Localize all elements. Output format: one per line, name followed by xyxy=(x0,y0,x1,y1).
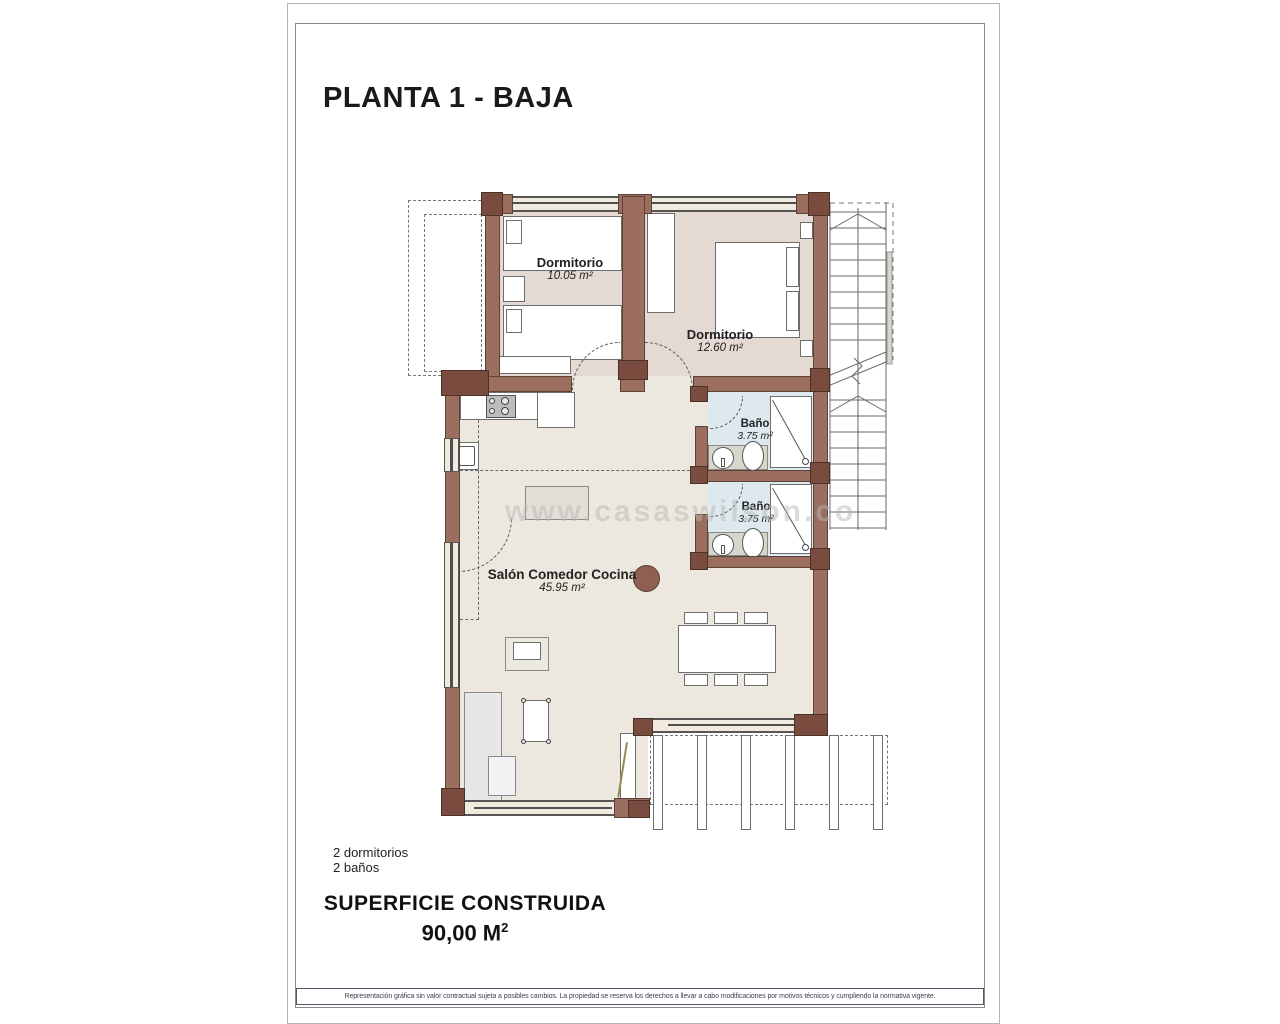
terrace-column xyxy=(873,735,883,830)
bed-pillow xyxy=(506,309,522,333)
washbasin xyxy=(742,441,764,471)
bath-post xyxy=(690,386,708,402)
bath-south-wall xyxy=(695,556,828,568)
east-wall-post xyxy=(810,462,830,484)
dining-chair xyxy=(684,674,708,686)
shower-drain xyxy=(802,458,809,465)
nightstand xyxy=(800,340,813,357)
coffee-table xyxy=(523,700,549,742)
upper-terrace-inner xyxy=(424,214,482,372)
corner-post-nw xyxy=(481,192,503,216)
bedroom-1-west-wall xyxy=(485,196,500,378)
stove-burner xyxy=(501,397,509,405)
terrace-column xyxy=(653,735,663,830)
sofa-chaise xyxy=(488,756,516,796)
living-label: Salón Comedor Cocina 45.95 m² xyxy=(482,568,642,595)
coffee-table-leg xyxy=(521,739,526,744)
summary-baths: 2 baños xyxy=(333,860,379,875)
corner-post-se xyxy=(794,714,828,736)
bath-post xyxy=(690,552,708,570)
floorplan-document: PLANTA 1 - BAJA xyxy=(0,0,1280,1024)
coffee-table-leg xyxy=(546,698,551,703)
bedroom-partition-wall xyxy=(622,196,645,378)
nightstand xyxy=(800,222,813,239)
dining-chair xyxy=(714,612,738,624)
bath-1-label: Baño 3.75 m² xyxy=(715,418,795,442)
summary-bedrooms: 2 dormitorios xyxy=(333,845,408,860)
built-area-block: SUPERFICIE CONSTRUIDA 90,00 M2 xyxy=(310,892,620,946)
terrace-column xyxy=(829,735,839,830)
plan-title: PLANTA 1 - BAJA xyxy=(323,82,574,115)
kitchen-zone-line-h xyxy=(460,470,695,471)
corner-post-ne xyxy=(808,192,830,216)
terrace-column xyxy=(741,735,751,830)
built-area-label: SUPERFICIE CONSTRUIDA xyxy=(310,892,620,916)
hall-wall-a xyxy=(485,376,572,392)
north-wall-band xyxy=(485,196,828,212)
shower-drain xyxy=(802,544,809,551)
dining-chair xyxy=(744,612,768,624)
stove-burner xyxy=(489,408,495,414)
east-wall-post xyxy=(810,548,830,570)
bed-pillow xyxy=(786,247,799,287)
built-area-value: 90,00 M2 xyxy=(310,920,620,946)
bed-pillow xyxy=(786,291,799,331)
dresser xyxy=(495,356,571,374)
kitchen-window xyxy=(444,438,459,472)
hall-wall-c xyxy=(693,376,828,392)
bedroom-1-window xyxy=(513,202,618,204)
bath-post xyxy=(690,466,708,484)
footer-disclaimer-box: Representación gráfica sin valor contrac… xyxy=(296,988,984,1005)
toilet-tank xyxy=(721,458,725,467)
stairs xyxy=(828,200,895,532)
stove-burner xyxy=(501,407,509,415)
kitchen-cabinet xyxy=(537,392,575,428)
door-post-n xyxy=(633,718,653,736)
washbasin xyxy=(742,528,764,558)
dining-chair xyxy=(714,674,738,686)
watermark: www.casaswilson.co xyxy=(505,495,856,529)
tv-screen xyxy=(513,642,541,660)
east-wall-post xyxy=(810,368,830,392)
living-west-window xyxy=(444,542,459,688)
bedroom-1-label: Dormitorio 10.05 m² xyxy=(510,256,630,283)
dining-chair xyxy=(744,674,768,686)
corner-post-sw xyxy=(441,788,465,816)
coffee-table-leg xyxy=(546,739,551,744)
terrace-column xyxy=(785,735,795,830)
bedroom-partition-end xyxy=(618,360,648,380)
door-post-s xyxy=(628,800,650,818)
bedroom-2-window xyxy=(652,202,796,204)
coffee-table-leg xyxy=(521,698,526,703)
dining-table xyxy=(678,625,776,673)
footer-disclaimer-text: Representación gráfica sin valor contrac… xyxy=(345,993,936,1000)
corner-post-kitchen xyxy=(441,370,489,396)
kitchen-sink-basin xyxy=(459,446,475,466)
terrace-column xyxy=(697,735,707,830)
dining-chair xyxy=(684,612,708,624)
lower-terrace-outline xyxy=(650,735,888,805)
bedroom-2-label: Dormitorio 12.60 m² xyxy=(660,328,780,355)
living-south-window xyxy=(474,807,612,809)
bed-pillow xyxy=(506,220,522,244)
stove-burner xyxy=(489,398,495,404)
bath-mid-wall xyxy=(695,470,828,482)
wardrobe xyxy=(647,213,675,313)
toilet-tank xyxy=(721,545,725,554)
living-southeast-window xyxy=(668,724,794,726)
